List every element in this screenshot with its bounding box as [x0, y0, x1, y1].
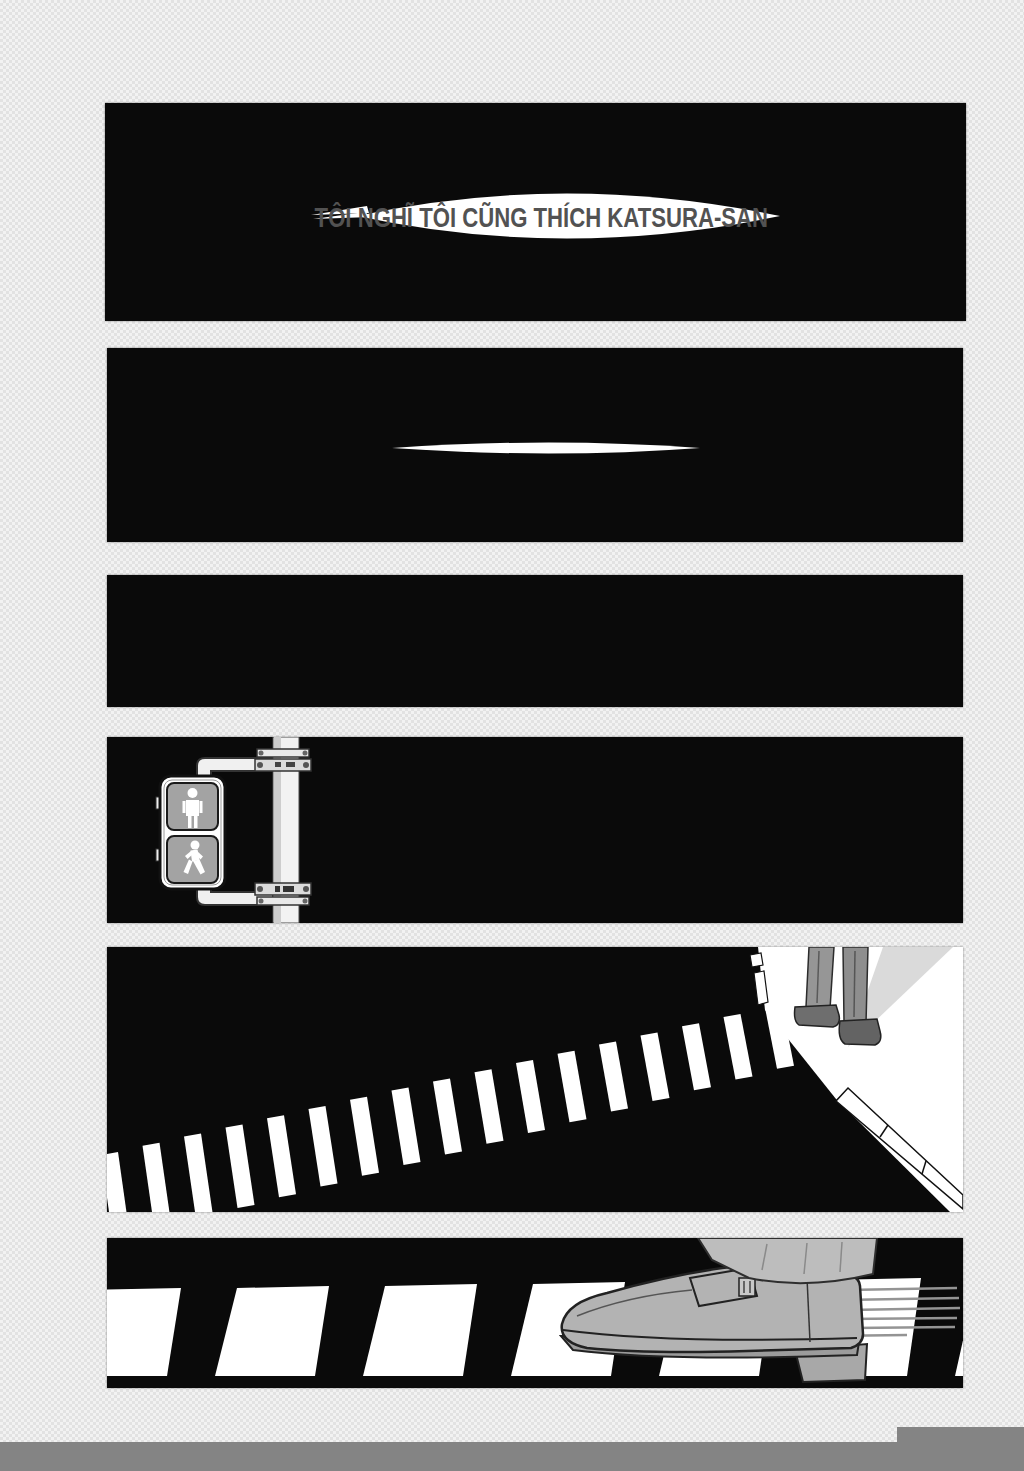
panel-4-pedestrian-signal: [107, 737, 963, 923]
signal-box: [156, 776, 225, 889]
panel-5-crosswalk-wide: [107, 947, 963, 1212]
shoe-step-scene: [107, 1238, 963, 1388]
panel-1-dialogue: TÔI NGHĨ TÔI CŨNG THÍCH KATSURA-SAN: [105, 103, 966, 321]
dialogue-text: TÔI NGHĨ TÔI CŨNG THÍCH KATSURA-SAN: [188, 199, 894, 237]
pedestrian-signal-icon: [107, 737, 963, 923]
light-slit-shape: [107, 348, 963, 542]
manga-page: TÔI NGHĨ TÔI CŨNG THÍCH KATSURA-SAN: [0, 0, 1024, 1471]
panel-6-shoe-closeup: [107, 1238, 963, 1388]
panel-2-light-slit: [107, 348, 963, 542]
crosswalk-stripes-far: [107, 1005, 794, 1212]
panel-3-black: [107, 575, 963, 707]
footer-gray-bar: [0, 1442, 1024, 1471]
crosswalk-scene: [107, 947, 963, 1212]
